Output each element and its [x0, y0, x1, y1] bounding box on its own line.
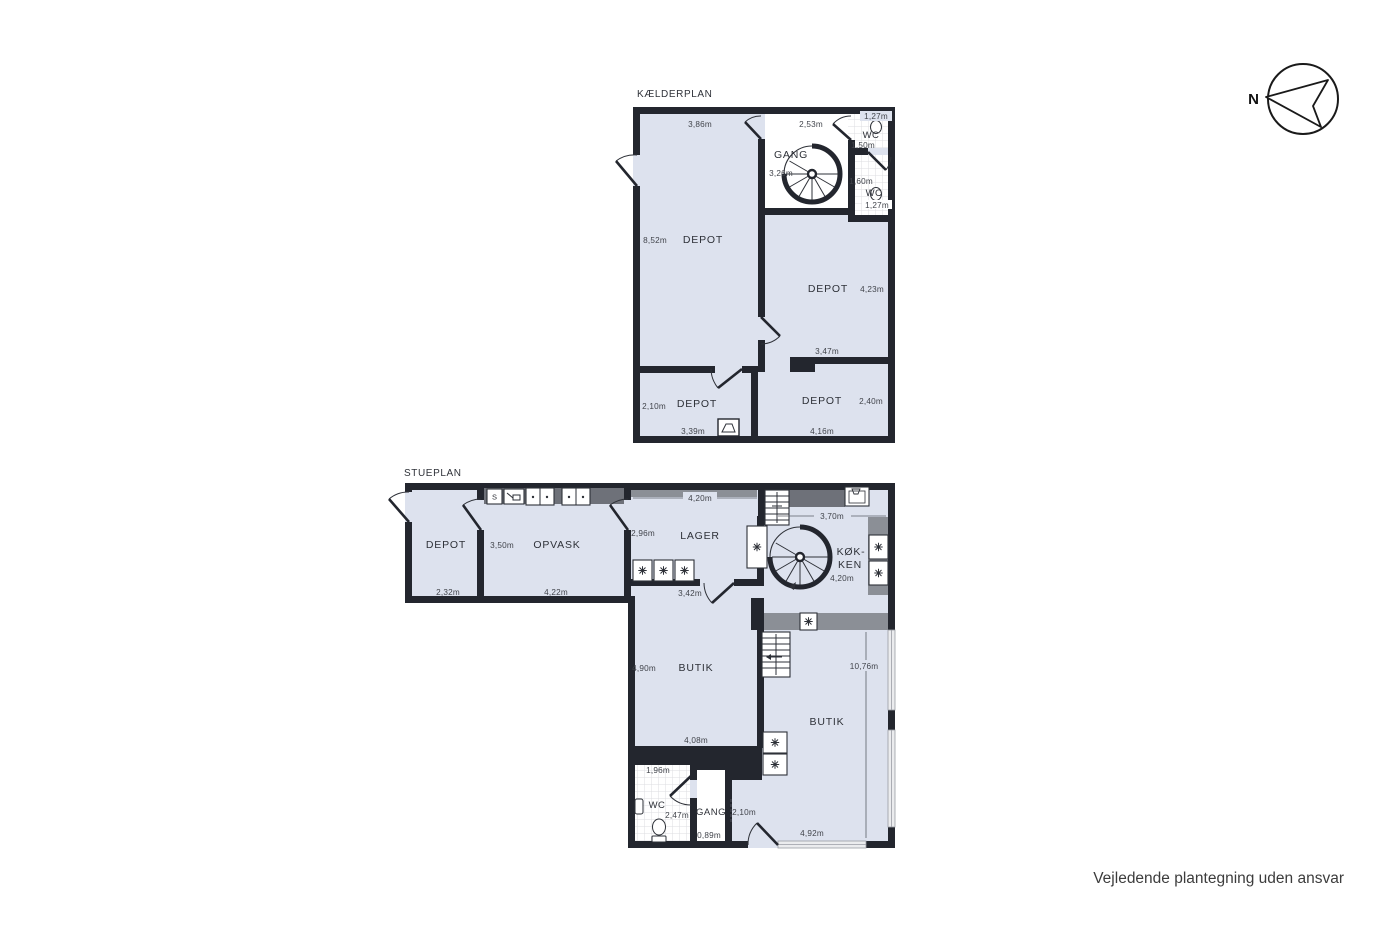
- straight-stairs-top: [765, 490, 789, 525]
- toilet-icon-stueplan: [652, 819, 666, 842]
- faucet-unit-icon: [504, 489, 524, 504]
- dim-label: 3,50m: [490, 541, 514, 550]
- dim-label: 4,16m: [810, 427, 834, 436]
- dim-label: 3,26m: [769, 169, 793, 178]
- kitchen-sink-icon: [845, 487, 869, 506]
- room-label-depot-se: DEPOT: [802, 395, 842, 407]
- dim-label: 2,47m: [665, 811, 689, 820]
- room-label-opvask: OPVASK: [533, 539, 580, 551]
- cabinet-s-label: S: [492, 493, 497, 502]
- dim-label: 3,42m: [678, 589, 702, 598]
- dim-label: 3,39m: [681, 427, 705, 436]
- dim-label: 1,50m: [851, 141, 875, 150]
- compass-north-label: N: [1248, 91, 1259, 108]
- room-label-wc-bottom: WC: [866, 188, 883, 199]
- kaelderplan-plan: KÆLDERPLAN: [616, 89, 895, 443]
- freezer-icon: [869, 561, 888, 585]
- dim-label: 1,27m: [864, 112, 888, 121]
- sink-unit-icon: [562, 488, 590, 505]
- compass: N: [1248, 64, 1338, 134]
- floorplan-canvas: KÆLDERPLAN: [0, 0, 1400, 933]
- dim-label: 4,20m: [830, 574, 854, 583]
- room-label-depot-main: DEPOT: [683, 234, 723, 246]
- dim-label: 2,53m: [799, 120, 823, 129]
- dim-label: 2,32m: [436, 588, 460, 597]
- room-label-depot-sw: DEPOT: [677, 398, 717, 410]
- freezer-icon: [869, 535, 888, 559]
- freezer-icon: [763, 732, 787, 753]
- dim-label: 4,22m: [544, 588, 568, 597]
- dim-label: 2,10m: [642, 402, 666, 411]
- window-hatch-icon: [718, 419, 739, 436]
- dim-label: 2,40m: [859, 397, 883, 406]
- koekken-top-counter: [789, 490, 845, 507]
- dim-label: 3,70m: [820, 512, 844, 521]
- room-label-lager: LAGER: [680, 530, 720, 542]
- room-label-butik-right: BUTIK: [810, 716, 845, 728]
- sink-icon-stueplan: [635, 799, 643, 814]
- floorplan-page: KÆLDERPLAN: [0, 0, 1400, 933]
- room-label-koekken-2: KEN: [838, 559, 862, 571]
- dim-label: 1,60m: [849, 177, 873, 186]
- dim-label: 4,90m: [632, 664, 656, 673]
- freezer-icon: [654, 560, 673, 581]
- dim-label: 4,08m: [684, 736, 708, 745]
- dim-label: 3,47m: [815, 347, 839, 356]
- room-label-koekken-1: KØK-: [837, 546, 866, 558]
- dim-label: 2,10m: [732, 808, 756, 817]
- freezer-icon: [800, 613, 817, 630]
- dim-label: 0,89m: [697, 831, 721, 840]
- stueplan-plan: STUEPLAN: [389, 468, 895, 848]
- straight-stairs-mid: [762, 632, 790, 677]
- stueplan-title: STUEPLAN: [404, 468, 462, 479]
- room-label-gang: GANG: [774, 149, 808, 161]
- dim-label: 3,86m: [688, 120, 712, 129]
- disclaimer-text: Vejledende plantegning uden ansvar: [1093, 870, 1344, 887]
- fridge-icon: [747, 526, 767, 568]
- freezer-icon: [633, 560, 652, 581]
- room-label-wc-top: WC: [863, 130, 880, 141]
- freezer-icon: [675, 560, 694, 581]
- dim-label: 4,23m: [860, 285, 884, 294]
- dim-label: 1,27m: [865, 201, 889, 210]
- dim-label: 1,96m: [646, 766, 670, 775]
- room-label-depot: DEPOT: [426, 539, 466, 551]
- room-label-gang: GANG: [696, 807, 726, 818]
- dim-label: 4,20m: [688, 494, 712, 503]
- room-label-depot-right: DEPOT: [808, 283, 848, 295]
- kaelderplan-title: KÆLDERPLAN: [637, 89, 712, 100]
- freezer-icon: [763, 754, 787, 775]
- room-label-butik-left: BUTIK: [679, 662, 714, 674]
- dim-label: 8,52m: [643, 236, 667, 245]
- sink-unit-icon: [526, 488, 554, 505]
- room-label-wc: WC: [649, 800, 666, 811]
- dim-label: 2,96m: [631, 529, 655, 538]
- mid-counter: [764, 613, 888, 630]
- dim-label: 10,76m: [850, 662, 879, 671]
- dim-label: 4,92m: [800, 829, 824, 838]
